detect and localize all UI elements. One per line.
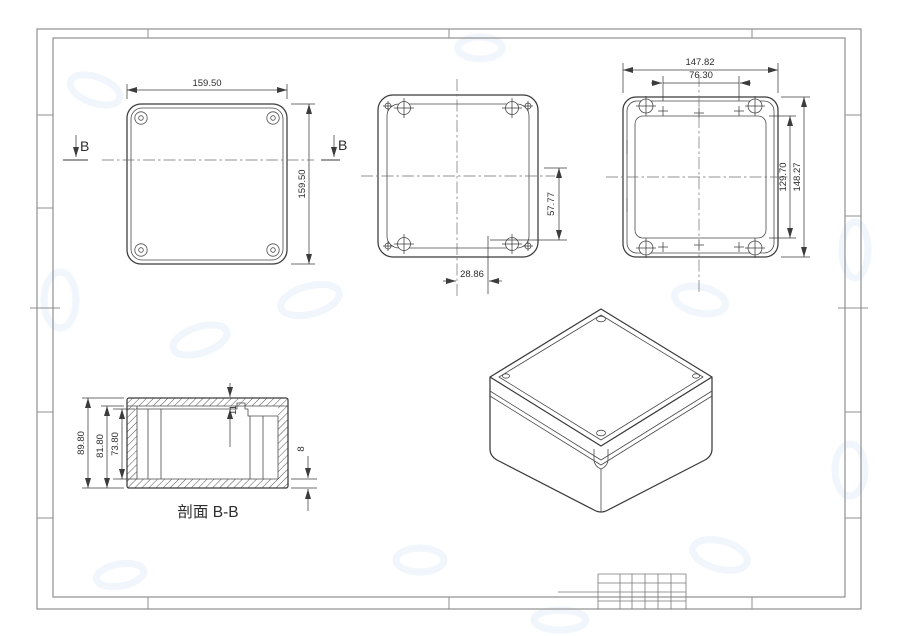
dim-lidinside-hole-spacing: 76.30 xyxy=(689,70,713,81)
dim-section-overall-height: 89.80 xyxy=(76,431,87,455)
view-section-bb: 89.80 81.80 73.80 11 8 剖面 B-B xyxy=(76,383,317,521)
dim-section-cavity-depth: 73.80 xyxy=(110,432,121,456)
section-cut-marker-right: B xyxy=(321,135,347,160)
dim-lidinside-outer-width: 147.82 xyxy=(685,57,714,68)
dim-lidinside-outer-height: 148.27 xyxy=(792,162,803,191)
view-lid-inside: 147.82 76.30 129.70 148.27 xyxy=(606,57,810,292)
dim-section-lid-height: 11 xyxy=(228,405,239,415)
dim-base-half-height: 57.77 xyxy=(546,192,557,216)
view-isometric xyxy=(490,309,712,512)
section-label: 剖面 B-B xyxy=(177,503,238,521)
dim-lidinside-inner-height: 129.70 xyxy=(778,162,789,191)
revision-table xyxy=(558,574,686,609)
cut-letter-right: B xyxy=(338,137,347,153)
section-cut-marker-left: B xyxy=(63,135,89,160)
drawing-sheet: 159.50 159.50 B B xyxy=(0,0,900,636)
cut-letter-left: B xyxy=(80,138,89,154)
dim-lid-height: 159.50 xyxy=(297,169,308,198)
dim-section-wall-thickness: 8 xyxy=(296,446,307,451)
dim-section-base-height: 81.80 xyxy=(95,434,106,458)
dim-lid-width: 159.50 xyxy=(192,78,221,89)
dim-base-half-width: 28.86 xyxy=(460,269,484,280)
view-base-bottom: 57.77 28.86 xyxy=(361,79,567,296)
